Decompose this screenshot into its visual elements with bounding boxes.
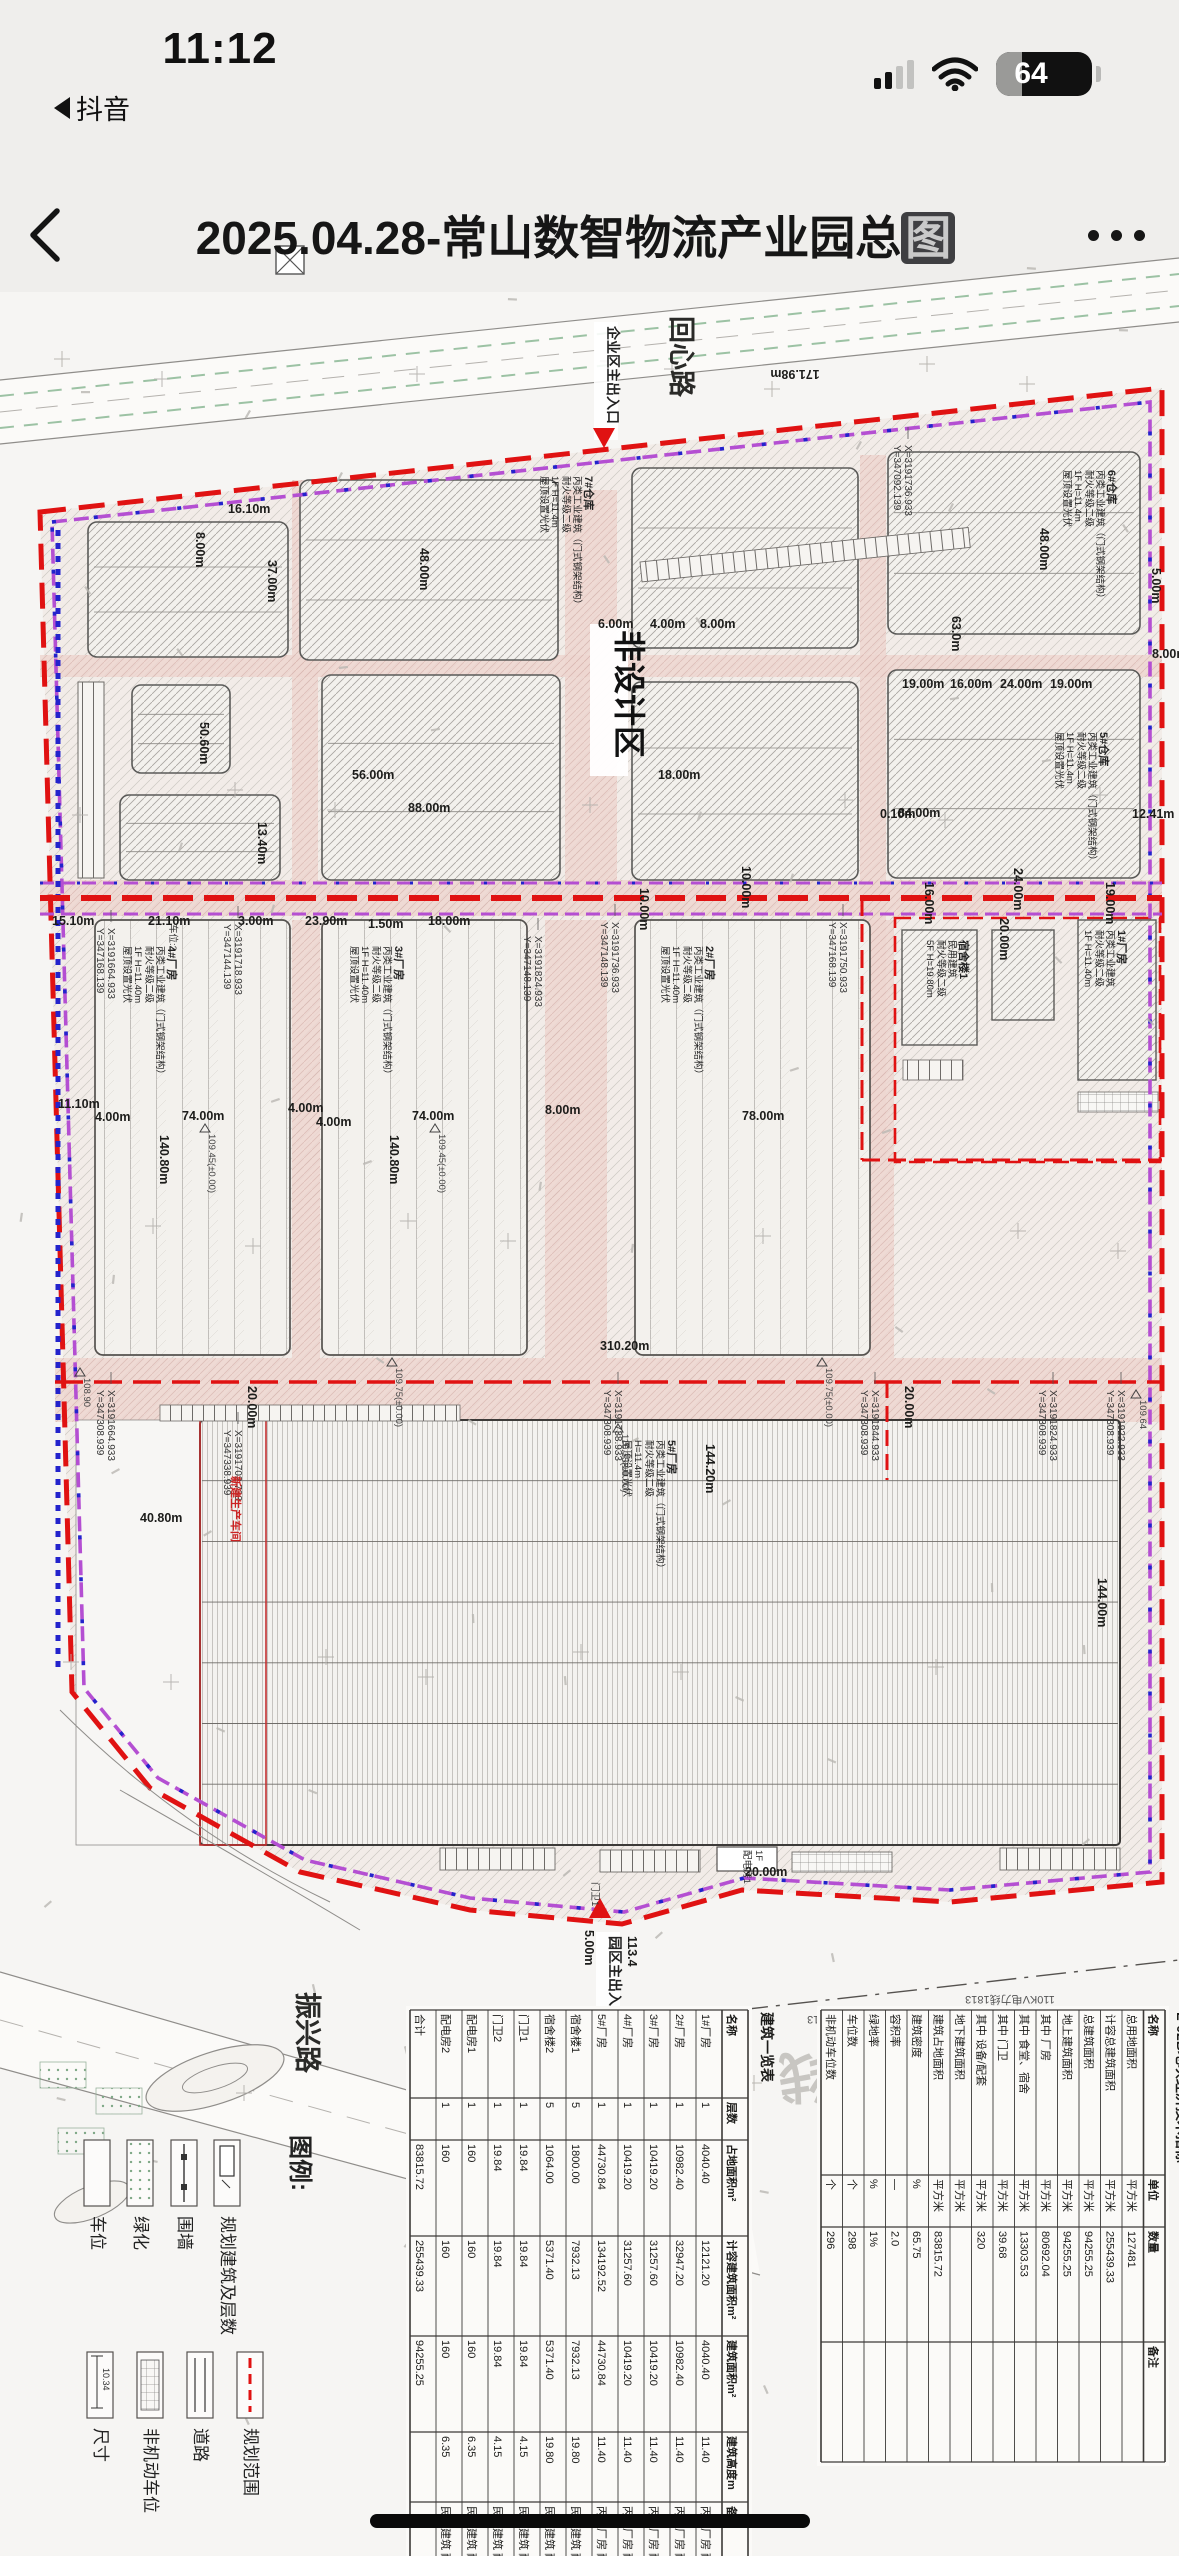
table-cell: 4.15 [517, 2436, 529, 2457]
elevation-label: 109.75(±0.00) [393, 1368, 404, 1427]
table-cell: 地上建筑面积 [1061, 2014, 1075, 2080]
dim-label: 24.00m [1000, 677, 1042, 691]
building-block [132, 685, 230, 773]
table-cell: 1#厂房 [699, 2014, 712, 2048]
coord-label: X=3191844.933 [869, 1390, 880, 1461]
dim-label: 20.00m [245, 1386, 259, 1428]
dim-label: 6.00m [598, 617, 633, 631]
building-annotation: 耐火等级二级 [1075, 732, 1087, 790]
coord-label: Y=347092.139 [891, 445, 902, 511]
building-annotation: 屋顶设置光伏 [538, 476, 550, 534]
small-label: 车位:2 [167, 924, 179, 951]
table-cell: 3#厂房 [647, 2014, 660, 2048]
building-annotation: 3#厂房 [392, 946, 406, 980]
table-cell: 10419.20 [621, 2340, 633, 2386]
legend-label: 绿化 [131, 2216, 150, 2250]
small-label: 门卫1 [589, 1882, 601, 1906]
dim-label: 15.10m [52, 914, 94, 928]
legend-label: 车位 [88, 2216, 107, 2250]
dim-label: 18.00m [658, 768, 700, 782]
table-cell: 94255.25 [1082, 2231, 1094, 2277]
phone-screen: 11:12 抖音 64 [0, 0, 1179, 2556]
dim-label: 16.00m [950, 677, 992, 691]
table-cell: 名称 [725, 2014, 739, 2036]
table-cell: 单位 [1147, 2179, 1161, 2201]
table-cell: 19.84 [517, 2340, 529, 2368]
elevation-label: 109.75(±0.00) [823, 1368, 834, 1427]
building-annotation: 1#厂房 [1115, 930, 1129, 964]
road [292, 920, 320, 1358]
table-cell: 1064.00 [543, 2144, 555, 2184]
dim-label: 10.00m [637, 888, 651, 930]
building-annotation: 民用建筑 [946, 940, 958, 979]
table-cell: 个 [846, 2179, 859, 2190]
table-cell: % [910, 2179, 922, 2189]
table-cell: 绿地率 [867, 2014, 881, 2047]
building-annotation: 1F H=11.4m [1064, 732, 1075, 784]
building-annotation: 1F H=11.4m [1072, 470, 1083, 522]
dim-label: 18.00m [428, 914, 470, 928]
coord-label: X=3191664.933 [105, 928, 116, 999]
dim-label: 12.41m [1132, 807, 1174, 821]
dim-label: 1.50m [368, 917, 403, 931]
table-cell: 建筑密度 [910, 2014, 924, 2058]
table-cell: 94255.25 [1061, 2231, 1073, 2277]
table-cell: 5371.40 [543, 2240, 555, 2280]
dim-label: 11.10m [58, 1097, 100, 1111]
table-cell: 83815.72 [932, 2231, 944, 2277]
dim-label: 4.00m [650, 617, 685, 631]
coord-label: X=3191750.933 [837, 922, 848, 993]
building-annotation: 1F H=11.40m [1082, 930, 1093, 987]
table-cell: 平方米 [1018, 2179, 1032, 2212]
table-cell: 320 [975, 2231, 987, 2249]
table-cell: 建筑面积m² [725, 2340, 739, 2398]
table-cell: 平方米 [1104, 2179, 1118, 2212]
home-indicator[interactable] [370, 2514, 810, 2528]
dim-label: 63.0m [949, 616, 963, 651]
table-cell: 10419.20 [621, 2144, 633, 2190]
site-plan-drawing[interactable]: 回心路振兴路非设计区企业区主出入口园区主出入口16.10m8.00m6.00m4… [0, 230, 1179, 2556]
coord-label: Y=347308.939 [94, 1390, 105, 1456]
table-cell: 平方米 [1039, 2179, 1053, 2212]
coord-label: X=3191718.933 [232, 924, 243, 995]
dim-label: 13.40m [255, 822, 269, 864]
table-cell: — [889, 2179, 901, 2190]
building-annotation: 6#仓库 [1105, 470, 1119, 504]
dim-label: 5.00m [1149, 568, 1163, 603]
data-table: 名称单位数量备注总用地面积平方米127481计容总建筑面积平方米255439.3… [817, 2006, 1169, 2466]
wifi-icon [932, 57, 978, 91]
dim-label: 140.80m [387, 1135, 401, 1184]
table-cell: 1 [647, 2102, 659, 2108]
coord-label: Y=347148.139 [521, 936, 532, 1002]
table-title: 建筑一览表 [759, 2012, 775, 2083]
table-cell: 占地面积m² [725, 2144, 739, 2202]
table-cell: 备注 [1147, 2345, 1161, 2368]
table-cell: 个 [824, 2179, 837, 2190]
dim-label: 5.00m [582, 1930, 596, 1965]
table-cell: 19.84 [517, 2240, 529, 2268]
table-cell: 13303.53 [1018, 2231, 1030, 2277]
table-cell: 1800.00 [569, 2144, 581, 2184]
table-cell: 2.0 [889, 2231, 901, 2246]
area-label: 非设计区 [611, 630, 647, 758]
table-cell: 平方米 [1061, 2179, 1075, 2212]
building-annotation: 2#厂房 [703, 946, 717, 980]
legend-label: 尺寸 [91, 2428, 110, 2462]
dim-label: 74.00m [412, 1109, 454, 1123]
table-cell: 10419.20 [647, 2144, 659, 2190]
table-cell: 160 [465, 2340, 477, 2358]
table-cell: 65.75 [910, 2231, 922, 2259]
building-annotation: 耐火等级二级 [935, 940, 947, 998]
dim-label: 48.00m [1037, 528, 1051, 570]
building-annotation: 丙类工业建筑（门式钢架结构） [654, 1440, 666, 1573]
table-cell: 其中 食堂、宿舍 [1018, 2014, 1032, 2094]
table-cell: 1 [491, 2102, 503, 2108]
table-cell: 容积率 [889, 2014, 903, 2047]
dim-label: 19.00m [902, 677, 944, 691]
table-cell: 总建筑面积 [1082, 2014, 1096, 2069]
building-block [888, 670, 1140, 878]
table-cell: 1 [621, 2102, 633, 2108]
dim-label: 56.00m [352, 768, 394, 782]
table-cell: 19.84 [491, 2340, 503, 2368]
table-cell: 宿舍楼2 [543, 2014, 557, 2053]
table-cell: 19.80 [569, 2436, 581, 2464]
table-cell: 11.40 [595, 2436, 607, 2463]
back-triangle-icon [54, 97, 70, 119]
table-cell: 44730.84 [595, 2340, 607, 2386]
building-annotation: 丙类工业建筑（门式钢架结构） [381, 946, 393, 1079]
road [870, 920, 894, 1358]
coord-label: Y=347148.139 [598, 922, 609, 988]
road [545, 920, 607, 1358]
table-cell: 11.40 [647, 2436, 659, 2463]
table-cell: 83815.72 [413, 2144, 425, 2190]
table-cell: 160 [465, 2144, 477, 2162]
table-cell: 160 [439, 2340, 451, 2358]
table-cell: 其中 设备/配套 [975, 2014, 989, 2086]
legend-label: 道路 [191, 2428, 210, 2462]
powerline-label: 110KV电力线1813 [965, 1993, 1055, 2007]
table-cell: 层数 [725, 2101, 739, 2125]
building-annotation: 1F H=11.40m [670, 946, 681, 1003]
table-cell: 1 [465, 2102, 477, 2108]
entrance-label: 企业区主出入口 [605, 325, 621, 424]
table-cell: 298 [846, 2231, 858, 2249]
table-cell: 配电房1 [465, 2014, 478, 2053]
table-cell: 39.68 [996, 2231, 1008, 2259]
dim-label: 74.00m [182, 1109, 224, 1123]
dim-label: 8.00m [1152, 647, 1179, 661]
table-cell: 2#厂房 [673, 2014, 686, 2048]
dim-label: 23.90m [305, 914, 347, 928]
table-cell: 车位数 [846, 2014, 860, 2047]
table-cell: 11.40 [621, 2436, 633, 2463]
elevation-label: 109.64 [1137, 1400, 1148, 1429]
coord-label: X=3191736.933 [609, 922, 620, 993]
table-cell: 1 [595, 2102, 607, 2108]
table-cell: 94255.25 [413, 2340, 425, 2386]
table-cell: 32947.20 [673, 2240, 685, 2286]
dim-label: 8.00m [545, 1103, 580, 1117]
dim-label: 16.10m [228, 502, 270, 516]
table-cell: 5 [569, 2102, 581, 2108]
dim-label: 8.00m [193, 532, 207, 567]
table-cell: 6.35 [465, 2436, 477, 2457]
table-cell: 11.40 [699, 2436, 711, 2463]
battery-percent: 64 [996, 52, 1066, 96]
elevation-label: 110.35(±0.00) [619, 1434, 630, 1492]
table-cell: 总用地面积 [1125, 2014, 1139, 2069]
table-cell: 1 [699, 2102, 711, 2108]
building-annotation: 1F H=11.4m [549, 476, 560, 528]
table-cell: 5371.40 [543, 2340, 555, 2380]
building-annotation: 丙类工业建筑（门式钢架结构） [1094, 470, 1106, 603]
table-cell: % [867, 2179, 879, 2189]
table-cell: 建筑占地面积 [932, 2014, 946, 2080]
dim-label: 4.00m [288, 1101, 323, 1115]
table-cell: 平方米 [953, 2179, 967, 2212]
table-cell: 255439.33 [1104, 2231, 1116, 2283]
road-name: 振兴路 [292, 1992, 323, 2074]
table-cell: 10419.20 [647, 2340, 659, 2386]
legend-label: 非机动车位 [141, 2428, 160, 2513]
table-cell: 平方米 [1125, 2179, 1139, 2212]
coord-label: X=3191922.933 [1115, 1390, 1126, 1461]
svg-text:10.34: 10.34 [101, 2368, 111, 2391]
dim-label: 144.20m [703, 1444, 717, 1493]
elevation-label: 108.90 [81, 1378, 92, 1407]
dim-label: 20.00m [997, 918, 1011, 960]
table-cell: 19.84 [491, 2144, 503, 2172]
document-title: 2025.04.28-常山数智物流产业园总图 [90, 202, 1061, 268]
table-cell: 31257.60 [621, 2240, 633, 2286]
table-cell: 合计 [413, 2014, 427, 2036]
table-cell: 11.40 [673, 2436, 685, 2463]
table-cell: 31257.60 [647, 2240, 659, 2286]
table-cell: 5 [543, 2102, 555, 2108]
table-cell: 19.84 [491, 2240, 503, 2268]
back-to-app-link[interactable]: 抖音 [54, 88, 130, 127]
coord-label: Y=347144.139 [221, 924, 232, 990]
status-icons: 64 [874, 52, 1101, 96]
coord-label: X=3191664.933 [105, 1390, 116, 1461]
table-cell: 非机动车位数 [824, 2014, 838, 2080]
table-cell: 6.35 [439, 2436, 451, 2457]
table-cell: 平方米 [975, 2179, 989, 2212]
table-cell: 1 [439, 2102, 451, 2108]
table-cell: 10982.40 [673, 2340, 685, 2386]
building-annotation: 5#仓库 [1097, 732, 1111, 766]
coord-label: X=3191736.933 [902, 445, 913, 516]
dim-label: 113.4 [625, 1936, 639, 1967]
legend-label: 规划范围 [241, 2428, 260, 2496]
dim-label: 48.00m [417, 548, 431, 590]
elevation-label: 109.45(±0.00) [206, 1134, 217, 1193]
table-cell: 80692.04 [1039, 2231, 1051, 2277]
table-cell: 134192.52 [595, 2240, 607, 2292]
table-cell: 计容建筑面积m² [725, 2240, 739, 2320]
elevation-label: 109.45(±0.00) [436, 1134, 447, 1193]
table-cell: 1 [673, 2102, 685, 2108]
table-cell: 宿舍楼1 [569, 2014, 583, 2053]
building-annotation: 屋顶设置光伏 [659, 946, 671, 1004]
cellular-signal-icon [874, 59, 914, 89]
table-cell: 10982.40 [673, 2144, 685, 2190]
table-cell: 1 [517, 2102, 529, 2108]
building-annotation: 屋顶设置光伏 [348, 946, 360, 1004]
table-cell: 4040.40 [699, 2340, 711, 2380]
building-annotation: 丙类工业建筑（门式钢架结构） [692, 946, 704, 1079]
table-cell: 地下建筑面积 [953, 2014, 967, 2080]
table-cell: 建筑高度m [725, 2436, 739, 2490]
building-annotation: 屋顶设置光伏 [1061, 470, 1073, 528]
dim-label: 140.80m [157, 1135, 171, 1184]
dim-label: 310.20m [600, 1339, 649, 1353]
dim-label: 4.00m [316, 1115, 351, 1129]
more-menu-button[interactable] [1061, 230, 1179, 241]
dim-label: 37.00m [265, 560, 279, 602]
table-cell: 平方米 [1082, 2179, 1096, 2212]
dim-label: 144.00m [1095, 1578, 1109, 1627]
dim-label: 50.60m [197, 722, 211, 764]
battery-icon: 64 [996, 52, 1092, 96]
table-title: L-02B地块经济技术指标 [1174, 2012, 1179, 2163]
dim-label: 24.00m [1011, 868, 1025, 910]
building-annotation: 屋顶设置光伏 [1053, 732, 1065, 790]
dim-label: 19.00m [1103, 882, 1117, 924]
building-annotation: 5#厂房 [665, 1440, 679, 1474]
coord-label: X=3191824.933 [1047, 1390, 1058, 1461]
building-annotation: 耐火等级二级 [1093, 930, 1105, 988]
coord-label: Y=347308.939 [1104, 1390, 1115, 1456]
building-annotation: 新建生产车间 [229, 1476, 243, 1542]
table-cell: 5#厂房 [595, 2014, 608, 2048]
legend-label: 围墙 [175, 2216, 194, 2250]
table-cell: 296 [824, 2231, 836, 2249]
table-cell: 160 [439, 2240, 451, 2258]
table-cell: 平方米 [932, 2179, 946, 2212]
back-app-label: 抖音 [76, 88, 130, 127]
table-cell: 配电房2 [439, 2014, 452, 2053]
building-annotation: 宿舍楼1 [957, 940, 971, 979]
dim-label: 16.00m [922, 882, 936, 924]
table-cell: 其中 厂房 [1039, 2014, 1052, 2061]
table-cell: 160 [439, 2144, 451, 2162]
legend-title: 图例: [286, 2135, 313, 2191]
table-cell: 1% [867, 2231, 879, 2247]
site-plan-document[interactable]: 回心路振兴路非设计区企业区主出入口园区主出入口16.10m8.00m6.00m4… [0, 230, 1179, 2556]
table-cell: 7932.13 [569, 2240, 581, 2280]
small-label: 配电房1 [741, 1850, 753, 1884]
chevron-left-icon [27, 207, 63, 263]
dim-label: 40.80m [140, 1511, 182, 1525]
table-cell: 160 [465, 2240, 477, 2258]
coord-label: Y=347168.139 [94, 928, 105, 994]
building-block [88, 522, 288, 657]
building-annotation: 1F H=11.40m [359, 946, 370, 1003]
legend-label: 规划建筑及层数 [218, 2216, 237, 2335]
building-annotation: 耐火等级二级 [643, 1440, 655, 1498]
table-cell: 名称 [1147, 2014, 1161, 2036]
table-cell: 4040.40 [699, 2144, 711, 2184]
coord-label: Y=347308.939 [1036, 1390, 1047, 1456]
small-label: 1F [753, 1850, 764, 1861]
dim-label: 10.00m [739, 866, 753, 908]
table-cell: 7932.13 [569, 2340, 581, 2380]
table-cell: 255439.33 [413, 2240, 425, 2292]
battery-cap [1096, 66, 1101, 82]
table-cell: 门卫2 [491, 2014, 505, 2042]
building-annotation: 耐火等级二级 [143, 946, 155, 1004]
dim-label: 19.00m [1050, 677, 1092, 691]
building-annotation: 7#仓库 [582, 476, 596, 510]
dim-label: 4.00m [95, 1110, 130, 1124]
coord-label: X=3191824.933 [532, 936, 543, 1007]
building-annotation: H=11.4m [632, 1440, 643, 1478]
building-annotation: 丙类工业建筑 [1104, 930, 1116, 988]
building-annotation: 丙类工业建筑（门式钢架结构） [571, 476, 583, 609]
table-cell: 其中 门卫 [996, 2014, 1010, 2061]
table-cell: 数量 [1147, 2231, 1161, 2253]
dim-label: 8.00m [700, 617, 735, 631]
building-annotation: 耐火等级二级 [1083, 470, 1095, 528]
dim-label: 0.10m [880, 807, 915, 821]
dim-label: 88.00m [408, 801, 450, 815]
data-table: 名称层数占地面积m²计容建筑面积m²建筑面积m²建筑高度m备注1#厂房14040… [406, 2006, 752, 2556]
status-bar: 11:12 抖音 64 [0, 0, 1179, 130]
nav-bar: 2025.04.28-常山数智物流产业园总图 [0, 176, 1179, 294]
building-annotation: 5F H=19.80m [924, 940, 935, 998]
table-cell: 44730.84 [595, 2144, 607, 2190]
building-annotation: 屋顶设置光伏 [121, 946, 133, 1004]
building-annotation: 丙类工业建筑（门式钢架结构） [154, 946, 166, 1079]
table-cell: 127481 [1125, 2231, 1137, 2268]
dim-label: 171.98m [770, 367, 819, 381]
building-annotation: 1F H=11.40m [132, 946, 143, 1003]
building-annotation: 丙类工业建筑（门式钢架结构） [1086, 732, 1098, 865]
table-cell: 平方米 [996, 2179, 1010, 2212]
building-annotation: 耐火等级二级 [370, 946, 382, 1004]
coord-label: Y=347308.939 [601, 1390, 612, 1456]
coord-label: Y=347308.939 [858, 1390, 869, 1456]
building-annotation: 耐火等级二级 [681, 946, 693, 1004]
dim-label: 78.00m [742, 1109, 784, 1123]
back-button[interactable] [0, 176, 90, 294]
table-cell: 4#厂房 [621, 2014, 634, 2048]
building-annotation: 4#厂房 [165, 946, 179, 980]
clock: 11:12 [140, 24, 300, 74]
title-last-char: 图 [901, 212, 955, 264]
table-cell: 计容总建筑面积 [1104, 2014, 1118, 2091]
dim-label: 20.00m [902, 1386, 916, 1428]
building-annotation: 耐火等级二级 [560, 476, 572, 534]
table-cell: 12121.20 [699, 2240, 711, 2286]
table-cell: 门卫1 [517, 2014, 531, 2042]
table-cell: 19.80 [543, 2436, 555, 2464]
table-cell: 19.84 [517, 2144, 529, 2172]
road-name: 回心路 [666, 316, 697, 398]
table-cell: 4.15 [491, 2436, 503, 2457]
coord-label: Y=347168.139 [826, 922, 837, 988]
